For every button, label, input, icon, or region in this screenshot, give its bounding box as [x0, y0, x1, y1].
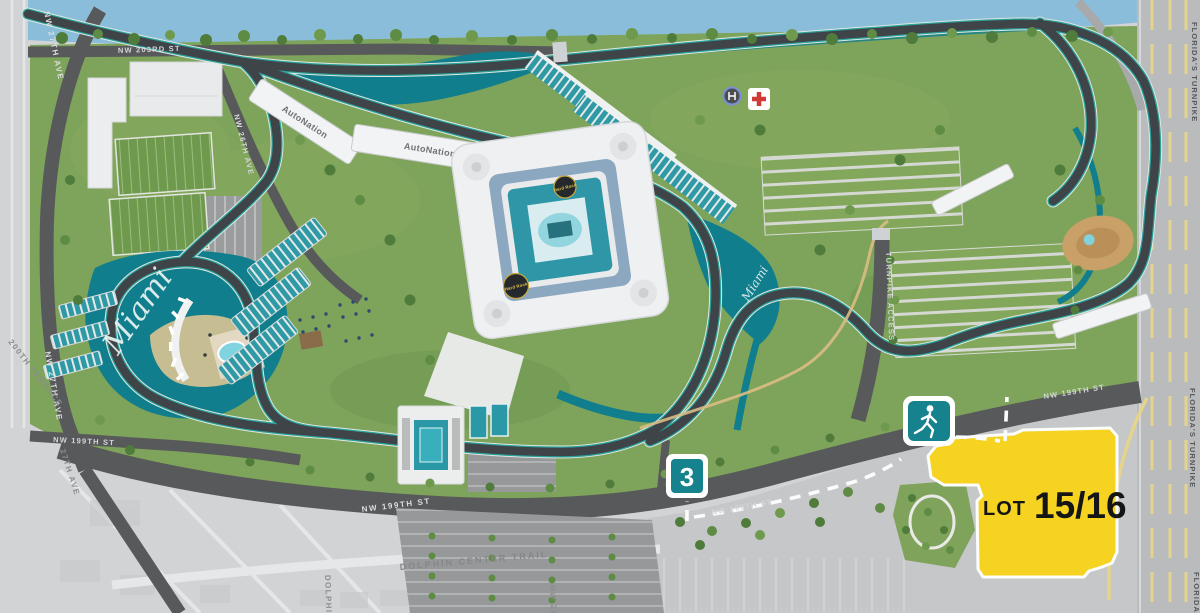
pedestrian-badge[interactable]: [903, 396, 955, 446]
street-label-turnpike-right: FLORIDA'S TURNPIKE: [1188, 388, 1197, 488]
road-nw-203rd-st: [28, 49, 560, 52]
hard-rock-stadium: [449, 119, 670, 340]
street-label-nw-22nd: NW 22ND: [548, 585, 559, 613]
hard-rock-logo-south: Hard Rock: [504, 274, 529, 299]
medical-center: [748, 88, 770, 110]
miami-gp-campus-map: AutoNation AutoNation Hard Rock Hard Roc…: [0, 0, 1200, 613]
street-label-dolphin-vertical: DOLPHIN: [323, 575, 334, 613]
gate-3-badge[interactable]: 3: [666, 454, 708, 498]
southeast-parking: [662, 558, 907, 612]
street-label-turnpike-top: FLORIDA'S TURNPIKE: [1190, 22, 1199, 122]
lot-label-prefix: LOT: [983, 498, 1026, 520]
street-label-turnpike-bottom: FLORIDA'S TURNPIKE: [1192, 572, 1200, 613]
map-canvas: AutoNation AutoNation Hard Rock Hard Roc…: [0, 0, 1200, 613]
gate-number: 3: [680, 462, 694, 492]
helipad-icon: [724, 88, 741, 105]
lot-label-number: 15/16: [1034, 485, 1127, 526]
